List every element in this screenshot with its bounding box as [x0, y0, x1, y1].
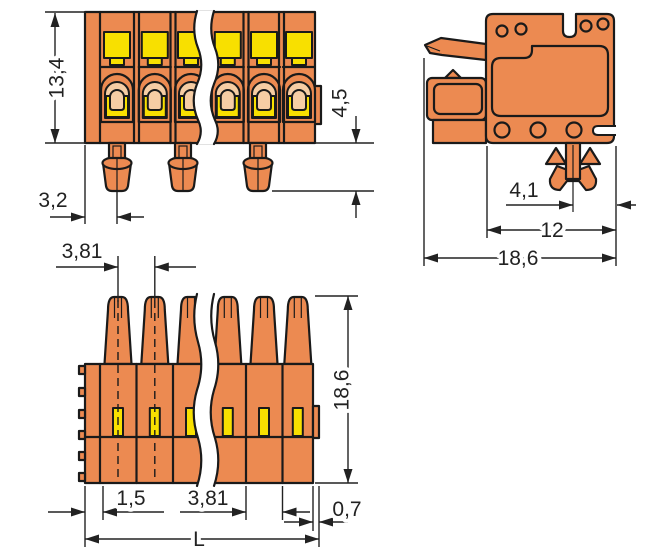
bottom-view — [79, 294, 319, 486]
dim-label-12: 12 — [540, 219, 563, 242]
tooth — [79, 388, 85, 396]
hole — [531, 123, 546, 138]
dim-label-4-1: 4,1 — [509, 179, 538, 202]
tooth — [79, 410, 85, 418]
dim-label-L: L — [193, 528, 205, 551]
dim-label-13-4: 13,4 — [45, 57, 68, 98]
strain-slot — [593, 126, 616, 135]
connector-dimension-drawing: 13,4 3,2 4,5 4,1 12 18,6 — [0, 0, 672, 558]
hole — [567, 123, 582, 138]
front-view — [85, 11, 321, 191]
tooth — [79, 452, 85, 460]
hole — [497, 26, 508, 37]
side-view — [425, 14, 616, 190]
hole — [598, 19, 609, 30]
tooth — [79, 431, 85, 439]
dim-label-18-6-side: 18,6 — [498, 247, 539, 270]
snap-barb — [546, 148, 566, 164]
side-block-lower — [433, 120, 486, 143]
tooth — [79, 473, 85, 481]
dim-label-0-7: 0,7 — [332, 498, 361, 521]
dim-label-1-5: 1,5 — [116, 487, 145, 510]
tooth — [79, 366, 85, 374]
dim-label-3-81-top: 3,81 — [62, 240, 103, 263]
hole — [495, 123, 510, 138]
technical-drawing-page: 13,4 3,2 4,5 4,1 12 18,6 — [0, 0, 672, 558]
hole — [516, 24, 527, 35]
snap-barb — [580, 148, 600, 164]
dim-label-18-6-bottom: 18,6 — [330, 370, 353, 411]
dim-label-3-81-bottom: 3,81 — [188, 487, 229, 510]
dim-label-4-5: 4,5 — [328, 88, 351, 117]
latch-bump — [445, 70, 461, 78]
dim-label-3-2: 3,2 — [38, 189, 67, 212]
hole — [581, 21, 592, 32]
side-rib — [313, 406, 319, 438]
